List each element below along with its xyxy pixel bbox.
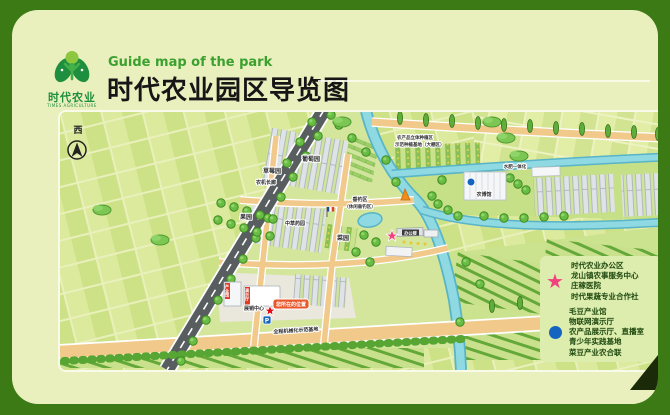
legend-item: 毛豆产业馆 — [569, 307, 644, 317]
parking-sign: P — [263, 316, 271, 325]
water-fertilizer-shed — [532, 167, 560, 177]
label-crop-zone-1: 农产品立体种植区 — [396, 134, 433, 141]
legend-star-icon: ★ — [546, 271, 564, 291]
poster-background: 时代农业 TIMES AGRICULTURE Guide map of the … — [0, 0, 670, 415]
brand-logo: 时代农业 TIMES AGRICULTURE — [40, 48, 104, 108]
you-are-here-label: 您所在的位置 — [276, 301, 306, 308]
legend-item: 时代果蔬专业合作社 — [571, 292, 639, 302]
red-tag-1-label: 产业馆 — [224, 283, 230, 298]
label-fishing-1: 垂钓区 — [352, 196, 367, 203]
tree-logo-icon — [50, 48, 94, 88]
legend-item: 庄稼医院 — [571, 281, 639, 291]
label-agri-expo: 农博馆 — [475, 191, 491, 198]
label-office: 办公楼 — [404, 230, 417, 237]
page-title: 时代农业园区导览图 — [107, 70, 350, 107]
label-orchard: 果园 — [239, 213, 252, 221]
legend-dot-icon — [549, 326, 562, 339]
venue-dot-marker — [467, 178, 475, 186]
parking-label: P — [265, 318, 270, 325]
compass-west-label: 西 — [73, 125, 82, 136]
label-grape: 葡萄园 — [301, 155, 320, 163]
panel-rows-east-1 — [533, 174, 615, 216]
legend-item: 时代农业办公区 — [571, 261, 639, 271]
brand-name: 时代农业 — [40, 92, 104, 103]
expo-center-buildings: 产业馆 演示厅 — [224, 282, 280, 306]
label-expo-center: 展销中心 — [243, 305, 264, 312]
park-map: 产业馆 演示厅 — [58, 110, 658, 372]
red-tag-2-label: 演示厅 — [244, 287, 250, 302]
label-crop-zone-2: 示范种植基地（大棚区） — [395, 141, 445, 148]
label-water-fertilizer: 水肥一体化 — [504, 163, 527, 170]
brand-subtitle: TIMES AGRICULTURE — [40, 103, 104, 108]
title-divider — [318, 80, 650, 82]
title-english: Guide map of the park — [108, 55, 272, 70]
label-vegetable-garden: 菜园 — [336, 234, 349, 242]
legend-star-group: ★ 时代农业办公区 龙山镇农事服务中心 庄稼医院 时代果蔬专业合作社 — [546, 261, 656, 302]
guide-map-card: 时代农业 TIMES AGRICULTURE Guide map of the … — [12, 10, 658, 404]
panel-rows-east-2 — [621, 173, 658, 217]
label-strawberry: 草莓园 — [263, 167, 281, 175]
corner-fold — [630, 336, 658, 390]
label-machinery-corridor: 农机长廊 — [255, 179, 276, 186]
legend-item: 龙山镇农事服务中心 — [571, 271, 639, 281]
label-herb-garden: 中草药园 — [285, 220, 305, 227]
label-fishing-2: （休闲垂钓区） — [344, 203, 376, 210]
legend-item: 物联网演示厅 — [569, 317, 644, 327]
